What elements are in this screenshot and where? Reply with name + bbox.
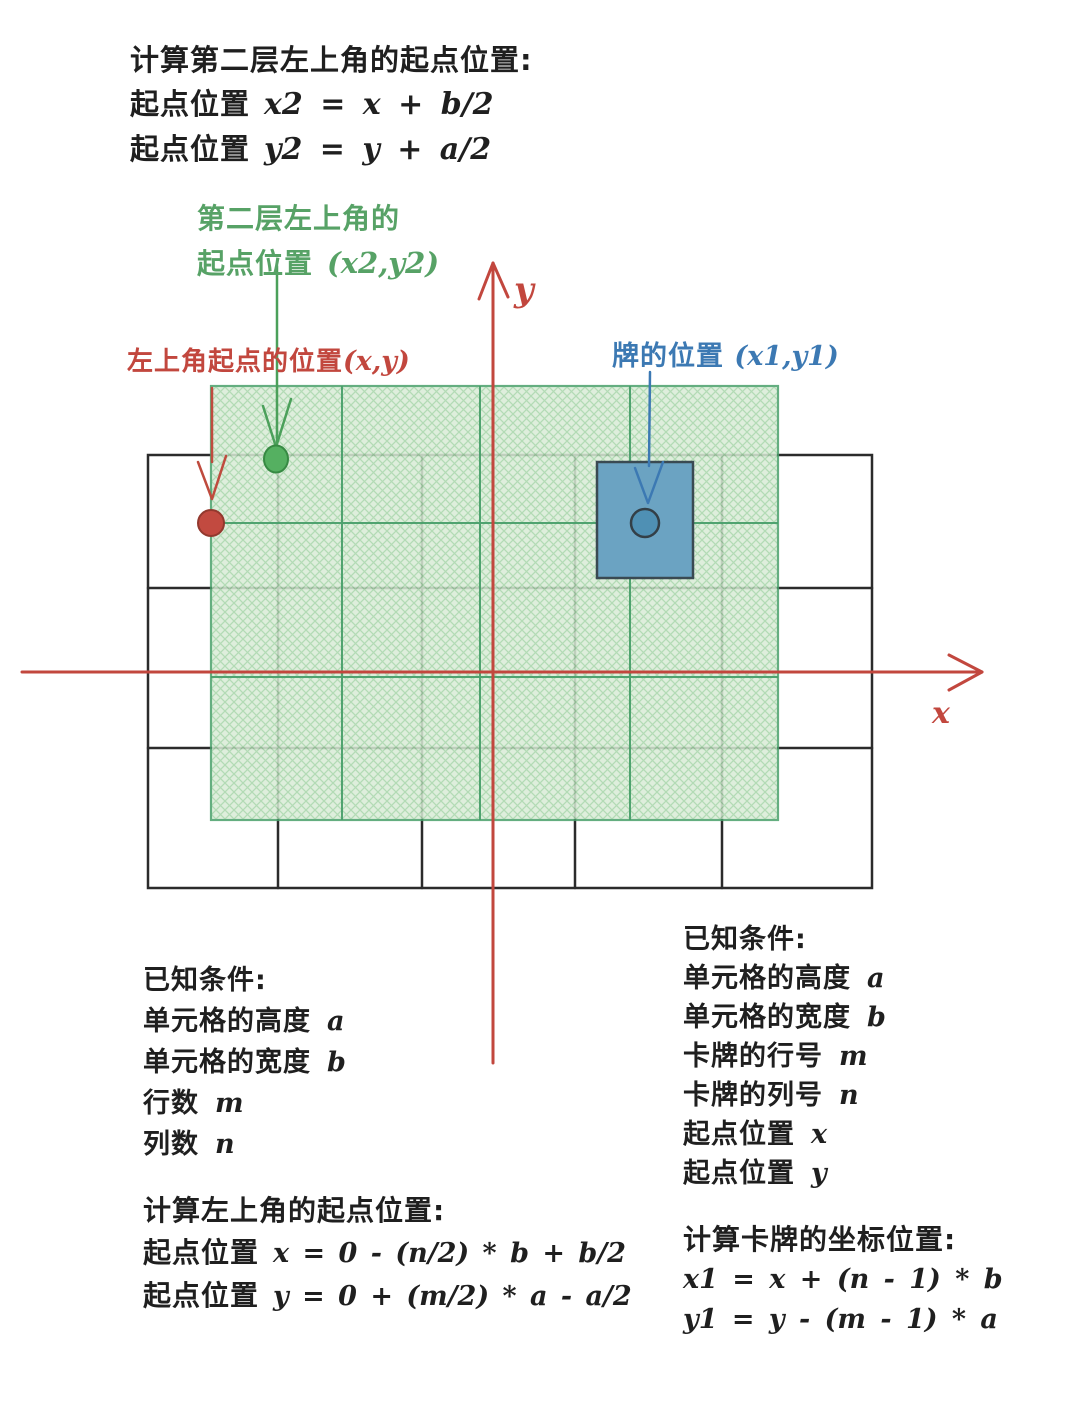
left-known-title: 已知条件: xyxy=(143,960,346,1001)
list-item: 起点位置 y xyxy=(683,1154,886,1193)
y-axis-label: y xyxy=(514,270,534,310)
list-item: 列数 n xyxy=(143,1124,346,1165)
layer2-start-dot xyxy=(264,446,288,473)
right-calc-title: 计算卡牌的坐标位置: xyxy=(683,1220,1003,1260)
x-axis-label: x xyxy=(932,696,950,731)
formula-line-x2: 起点位置 x2 = x + b/2 xyxy=(130,82,533,127)
right-calc-block: 计算卡牌的坐标位置: x1 = x + (n - 1) * b y1 = y -… xyxy=(683,1220,1003,1340)
list-item: 单元格的宽度 b xyxy=(683,998,886,1037)
list-item: 单元格的高度 a xyxy=(143,1001,346,1042)
formula-line-y2: 起点位置 y2 = y + a/2 xyxy=(130,127,533,172)
layer2-start-label: 第二层左上角的 起点位置 (x2,y2) xyxy=(197,196,439,286)
layer1-start-label: 左上角起点的位置(x,y) xyxy=(127,341,410,378)
right-known-conditions: 已知条件: 单元格的高度 a 单元格的宽度 b 卡牌的行号 m 卡牌的列号 n … xyxy=(683,920,886,1193)
formula-line-y: 起点位置 y = 0 + (m/2) * a - a/2 xyxy=(143,1275,632,1318)
layer1-start-dot xyxy=(198,510,224,536)
formula-line-x1: x1 = x + (n - 1) * b xyxy=(683,1260,1003,1300)
card-position-dot xyxy=(631,509,659,537)
list-item: 行数 m xyxy=(143,1083,346,1124)
handwritten-note-page: 计算第二层左上角的起点位置: 起点位置 x2 = x + b/2 起点位置 y2… xyxy=(0,0,1080,1407)
right-known-title: 已知条件: xyxy=(683,920,886,959)
top-title: 计算第二层左上角的起点位置: xyxy=(130,38,533,82)
left-calc-block: 计算左上角的起点位置: 起点位置 x = 0 - (n/2) * b + b/2… xyxy=(143,1190,632,1318)
card-position-label: 牌的位置 (x1,y1) xyxy=(612,334,839,373)
list-item: 起点位置 x xyxy=(683,1115,886,1154)
list-item: 单元格的高度 a xyxy=(683,959,886,998)
left-calc-title: 计算左上角的起点位置: xyxy=(143,1190,632,1232)
formula-line-x: 起点位置 x = 0 - (n/2) * b + b/2 xyxy=(143,1232,632,1275)
top-formula-block: 计算第二层左上角的起点位置: 起点位置 x2 = x + b/2 起点位置 y2… xyxy=(130,38,533,172)
formula-line-y1: y1 = y - (m - 1) * a xyxy=(683,1300,1003,1340)
list-item: 卡牌的列号 n xyxy=(683,1076,886,1115)
left-known-conditions: 已知条件: 单元格的高度 a 单元格的宽度 b 行数 m 列数 n xyxy=(143,960,346,1165)
list-item: 单元格的宽度 b xyxy=(143,1042,346,1083)
list-item: 卡牌的行号 m xyxy=(683,1037,886,1076)
